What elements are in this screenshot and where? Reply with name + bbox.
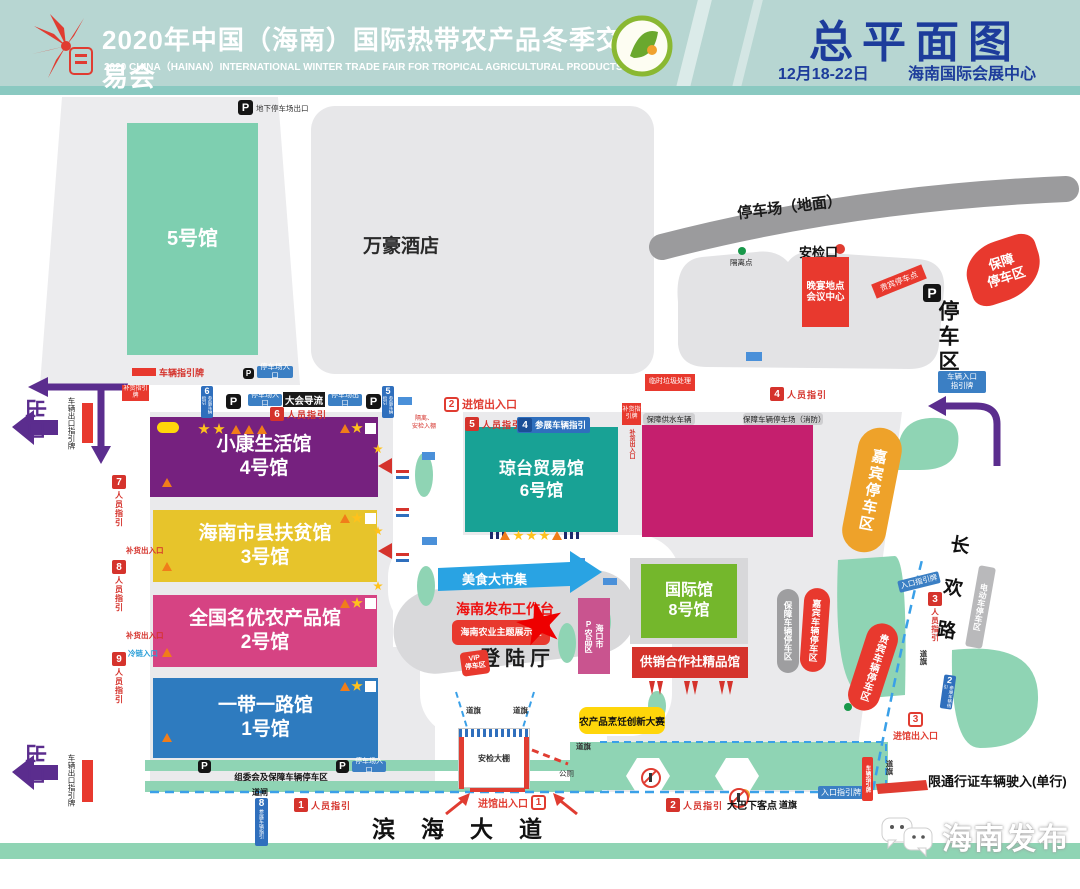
- committee-parking-label: 组委会及保障车辆停车区: [225, 771, 337, 783]
- security-shed-label: 安检大棚: [459, 753, 529, 764]
- hall-6: 琼台贸易馆6号馆: [465, 427, 618, 532]
- cone-icon: [162, 733, 172, 742]
- exit-label-bottom: 出口: [29, 742, 51, 786]
- parking-exit-sign: 停车场出口: [328, 394, 362, 406]
- info-square: [365, 598, 376, 609]
- barrier-gate-label: 道闸: [252, 787, 268, 798]
- isolation-point-label: 隔离点: [730, 257, 753, 268]
- vehicle-guide-sign-label: 车辆指引牌: [159, 366, 204, 379]
- landing-hall-label: 登陆厅: [480, 642, 555, 671]
- parking-icon: P: [238, 100, 253, 115]
- parking-icon: P: [366, 394, 381, 409]
- info-square: [365, 681, 376, 692]
- cooking-contest-badge: 农产品烹饪创新大赛: [579, 707, 665, 734]
- person-guide-2: 2人员指引: [666, 798, 723, 812]
- shed-left-column: [459, 737, 464, 789]
- person-guide-9: 9人员指引: [112, 652, 126, 704]
- vehicle-guide-sign-bar: 车辆指引牌: [862, 757, 873, 801]
- flag-label: 道旗: [466, 705, 481, 716]
- binhai-road-label: 滨海大道: [372, 810, 568, 844]
- venue-name: 海南国际会展中心: [908, 60, 1036, 84]
- fair-title-cn: 2020年中国（海南）国际热带农产品冬季交易会: [102, 20, 647, 94]
- support-vehicle-parking: 保障车辆停车区: [777, 589, 799, 673]
- food-market-label: 美食大市集: [462, 569, 527, 588]
- flag-label: 道旗: [918, 650, 929, 665]
- entrance-2: 2进馆出入口: [444, 396, 517, 412]
- support-fire-parking-label: 保障车辆停车场（消防）: [743, 413, 823, 425]
- restock-sign: 补货指引牌: [622, 403, 641, 425]
- cold-chain-entrance-label: 冷链入口: [128, 648, 158, 659]
- hall-7: [642, 425, 813, 537]
- vehicle-exit-sign-top: 车辆出口指引牌: [66, 397, 77, 450]
- parking-zone-label: 停车区: [932, 300, 962, 375]
- gongxiao-hall: 供销合作社精品馆: [632, 647, 748, 678]
- cone-icon: [340, 424, 350, 433]
- restricted-road-label: 限通行证车辆驶入(单行): [928, 771, 1067, 790]
- support-water-label: 保障供水车辆: [643, 413, 695, 425]
- header-stripe: [729, 0, 764, 95]
- checkpoint-pill: [157, 422, 179, 433]
- person-guide-8: 8人员指引: [112, 560, 126, 612]
- flag-label: 道旗: [576, 741, 591, 752]
- parking-entrance-sign: 停车场入口: [352, 761, 386, 772]
- cone-icon: [340, 599, 350, 608]
- toilet-label: 公厕: [559, 768, 574, 779]
- person-guide-6: 6人员指引: [270, 407, 327, 421]
- restock-gate-label: 补货出入口: [627, 429, 636, 459]
- vehicle-exit-sign-bottom: 车辆出口指引牌: [66, 754, 77, 807]
- flag-label: 道旗: [779, 798, 797, 811]
- cone-icon: [257, 425, 267, 434]
- header-stripe: [673, 0, 713, 95]
- person-guide-7: 7人员指引: [112, 475, 126, 527]
- person-guide-4: 4人员指引: [770, 387, 827, 401]
- hall-8: 国际馆8号馆: [641, 564, 737, 638]
- underground-parking-exit-label: 地下停车场出口: [256, 103, 309, 114]
- cone-icon: [552, 531, 562, 540]
- entrance-guide-sign: 入口指引牌: [818, 786, 864, 799]
- info-square: [365, 513, 376, 524]
- info-square: [365, 423, 376, 434]
- person-guide-5: 5人员指引: [465, 417, 522, 431]
- fair-flower-logo: [30, 8, 102, 86]
- exit-label-top: 出口: [29, 397, 51, 441]
- cone-icon: [162, 648, 172, 657]
- cone-icon: [162, 478, 172, 487]
- green-leaf-logo: [610, 12, 674, 80]
- marriott-hotel-label: 万豪酒店: [363, 231, 439, 258]
- watermark-text: 海南发布: [942, 814, 1070, 858]
- flag-label: 道旗: [513, 705, 528, 716]
- parking-icon: P: [198, 760, 211, 773]
- vehicle-guide-4: 4参展车辆指引: [517, 417, 590, 433]
- haikou-zone-block: 海口市 P农品区: [578, 598, 610, 674]
- restock-gate-label: 补货出入口: [126, 630, 164, 641]
- parking-icon: P: [243, 368, 254, 379]
- restock-sign: 补货指引牌: [122, 385, 149, 401]
- flag-label: 道旗: [884, 760, 895, 775]
- parking-entrance-sign: 停车场入口: [248, 394, 282, 406]
- restock-gate-label: 补货出入口: [126, 545, 164, 556]
- bus-dropoff-label: 大巴下客点: [727, 797, 777, 812]
- cone-icon: [340, 514, 350, 523]
- conference-flow-sign: 大会导流: [283, 392, 325, 407]
- trash-point: 临时垃圾处理: [645, 374, 695, 391]
- parking-icon: P: [336, 760, 349, 773]
- site-plan: 5号馆 小康生活馆4号馆 海南市县扶贫馆3号馆 全国名优农产品馆2号馆 一带一路…: [0, 0, 1080, 889]
- entrance-3: 3进馆出入口: [893, 712, 938, 742]
- quarantine-note-pill: 隔离、 安检入棚: [407, 412, 441, 442]
- vip-parking-badge: VIP 停车区: [459, 649, 490, 677]
- parking-icon: P: [226, 394, 241, 409]
- banquet-venue: 晚宴地点 会议中心: [802, 257, 849, 327]
- header: 2020年中国（海南）国际热带农产品冬季交易会 2020 CHINA（HAINA…: [0, 0, 1080, 95]
- person-guide-3: 3人员指引: [928, 592, 942, 642]
- vehicle-guide-8: 8参展车辆指引: [255, 798, 268, 846]
- vehicle-entrance-sign: 车辆入口 指引牌: [938, 371, 986, 393]
- event-date: 12月18-22日: [778, 60, 869, 84]
- shed-right-column: [524, 737, 529, 789]
- security-shed: 安检大棚: [458, 728, 530, 788]
- fair-title-en: 2020 CHINA（HAINAN）INTERNATIONAL WINTER T…: [104, 58, 649, 73]
- hall-5: 5号馆: [127, 123, 258, 355]
- vehicle-guide-6: 6参展车辆指引: [201, 386, 213, 418]
- vehicle-guide-5: 5参展车辆指引: [382, 386, 394, 418]
- parking-entrance-sign: 停车场入口: [257, 366, 293, 378]
- shed-awning: [459, 729, 529, 737]
- cone-icon: [231, 425, 241, 434]
- no-pedestrian-icon: [641, 768, 661, 788]
- person-guide-1: 1人员指引: [294, 798, 351, 812]
- cone-icon: [244, 425, 254, 434]
- cone-icon: [500, 531, 510, 540]
- watermark-logo: 海南发布: [880, 814, 1070, 858]
- cone-icon: [162, 562, 172, 571]
- cone-icon: [340, 682, 350, 691]
- wechat-icon: [880, 814, 936, 858]
- entrance-1: 进馆出入口1: [478, 795, 546, 810]
